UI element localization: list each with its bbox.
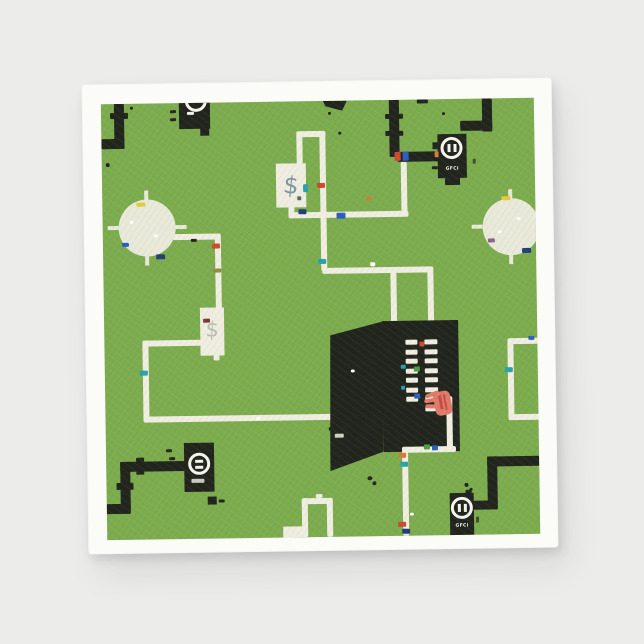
wire-nut xyxy=(212,243,220,248)
white-wire-segment xyxy=(405,446,456,453)
black-conduit-segment xyxy=(487,456,498,503)
paint-speck xyxy=(256,417,260,420)
breaker-switch xyxy=(425,377,438,382)
hand xyxy=(425,387,456,421)
light-tick xyxy=(145,256,149,266)
paint-speck xyxy=(203,319,210,323)
paint-speck xyxy=(419,341,424,346)
junction-knockout xyxy=(208,497,217,505)
paint-speck xyxy=(136,203,145,207)
gfci-label: GFCI xyxy=(453,523,471,529)
conduit-stub xyxy=(170,118,176,121)
paint-speck xyxy=(417,99,428,103)
wire-nut xyxy=(213,268,221,272)
white-wire-segment xyxy=(142,341,149,421)
circuit-pattern-print: GFCI xyxy=(101,98,540,540)
black-conduit-segment xyxy=(389,100,400,157)
paint-speck xyxy=(470,488,473,491)
ceiling-light-left xyxy=(118,199,176,257)
gfci-outlet-bottom-left xyxy=(184,443,215,492)
paint-speck xyxy=(366,196,371,200)
paint-speck xyxy=(473,159,476,164)
white-wire-segment xyxy=(390,270,397,323)
outlet-face-icon xyxy=(451,497,473,519)
wire-nut xyxy=(318,259,326,264)
conduit-coupling xyxy=(116,483,133,490)
paint-speck xyxy=(370,262,375,266)
paint-speck xyxy=(106,163,110,167)
outlet-slot xyxy=(195,466,203,469)
paint-speck xyxy=(498,230,502,233)
breaker-switch xyxy=(406,387,418,392)
paint-speck xyxy=(338,132,341,135)
electric-meter-box-left: $ xyxy=(200,307,225,355)
paint-speck xyxy=(501,196,510,200)
white-wire-segment xyxy=(319,131,327,271)
light-tick xyxy=(509,254,513,264)
paint-speck xyxy=(401,386,405,390)
paint-speck xyxy=(328,112,331,115)
white-wire-segment xyxy=(288,211,408,219)
paint-speck xyxy=(424,156,428,160)
outlet-face-icon xyxy=(185,103,207,112)
paint-speck xyxy=(303,184,308,192)
white-wire-segment xyxy=(507,338,514,420)
breaker-switch xyxy=(406,359,418,364)
black-conduit-segment xyxy=(460,120,492,130)
breaker-switch xyxy=(406,349,418,354)
wire-nut xyxy=(317,183,325,188)
white-wire-segment xyxy=(512,414,539,420)
outlet-slot xyxy=(195,460,203,463)
outlet-slot xyxy=(458,504,461,512)
wire-nut xyxy=(336,213,345,219)
wire-nut xyxy=(400,462,408,467)
conduit-stub xyxy=(169,457,175,460)
wire-nut xyxy=(424,444,430,449)
breaker-switch xyxy=(405,340,417,345)
electric-meter-box-top: $ xyxy=(276,163,307,207)
breaker-switch xyxy=(425,349,438,354)
outlet-ring xyxy=(188,453,210,475)
gfci-label: GFCI xyxy=(441,166,463,172)
paint-speck xyxy=(187,112,194,115)
paint-speck xyxy=(154,234,158,237)
paint-speck xyxy=(392,344,395,347)
ceiling-light-right xyxy=(482,198,540,256)
paint-speck xyxy=(464,483,468,487)
wire-nut xyxy=(398,522,406,527)
wire-nut xyxy=(191,239,197,242)
white-wire-segment xyxy=(143,414,334,423)
wire-nut xyxy=(398,453,406,458)
panel-door xyxy=(328,321,386,472)
paint-speck xyxy=(191,479,204,483)
outlet-slot xyxy=(453,144,456,152)
white-wire-segment xyxy=(327,498,334,537)
conduit-stub xyxy=(166,449,172,452)
paint-speck xyxy=(442,112,445,115)
gfci-mount-tab xyxy=(445,178,460,185)
paint-speck xyxy=(410,513,414,516)
junction-knockout xyxy=(200,128,209,136)
paint-speck xyxy=(488,238,495,242)
photo-background: GFCI xyxy=(0,0,644,644)
outlet-box-top-left xyxy=(179,103,210,129)
wire-nut xyxy=(432,445,438,450)
paint-speck xyxy=(156,254,165,259)
wire-nut xyxy=(402,529,410,534)
white-wire-segment xyxy=(143,340,201,347)
wire-nut xyxy=(505,367,513,372)
paint-speck xyxy=(297,196,301,200)
paint-speck xyxy=(476,517,479,523)
wire-nut xyxy=(403,152,409,161)
gfci-outlet-bottom-right: GFCI xyxy=(450,493,475,535)
white-wire-segment xyxy=(401,162,408,215)
white-wire-nub xyxy=(316,494,323,498)
black-conduit-segment xyxy=(107,504,131,514)
conduit-coupling xyxy=(136,458,144,475)
paint-speck xyxy=(329,427,333,431)
junction-box-bottom xyxy=(283,526,306,537)
paint-wedge xyxy=(323,101,347,111)
outlet-slot xyxy=(447,144,450,152)
conduit-coupling xyxy=(385,114,403,119)
conduit-coupling xyxy=(110,113,128,119)
paint-speck xyxy=(351,369,355,372)
breaker-switch xyxy=(425,358,438,363)
outlet-slot xyxy=(464,504,467,512)
paint-speck xyxy=(435,151,439,157)
paint-speck xyxy=(335,434,344,438)
breaker-switch xyxy=(424,339,437,344)
paint-speck xyxy=(130,221,134,224)
light-tick xyxy=(108,226,120,230)
paint-speck xyxy=(401,365,406,369)
wire-nut xyxy=(528,336,534,340)
breaker-switch xyxy=(425,368,438,373)
paint-speck xyxy=(372,481,376,485)
wire-nut xyxy=(298,209,306,214)
black-conduit-segment xyxy=(473,500,498,509)
paint-speck xyxy=(122,243,129,247)
light-tick xyxy=(144,191,148,201)
conduit-stub xyxy=(219,499,225,502)
wire-nut xyxy=(395,152,401,161)
paint-speck xyxy=(414,367,420,372)
light-tick xyxy=(175,225,187,229)
white-wire-segment xyxy=(427,269,434,322)
paint-speck xyxy=(414,394,420,399)
light-tick xyxy=(472,225,483,229)
junction-knockout xyxy=(432,142,437,149)
gfci-outlet-top-right: GFCI xyxy=(437,134,467,178)
paint-speck xyxy=(130,107,133,110)
conduit-coupling xyxy=(385,131,403,136)
outlet-face-icon xyxy=(188,453,210,475)
white-wire-segment xyxy=(296,133,302,164)
breaker-switch xyxy=(406,378,418,383)
paper-napkin: GFCI xyxy=(82,78,559,555)
paint-speck xyxy=(517,217,521,220)
white-wire-segment xyxy=(322,266,433,274)
paint-speck xyxy=(432,166,438,169)
outlet-face-icon xyxy=(440,137,462,159)
paint-speck xyxy=(367,476,372,480)
paint-speck xyxy=(522,248,531,253)
conduit-stub xyxy=(170,110,176,113)
wire-nut xyxy=(140,371,148,376)
black-conduit-segment xyxy=(101,139,124,149)
